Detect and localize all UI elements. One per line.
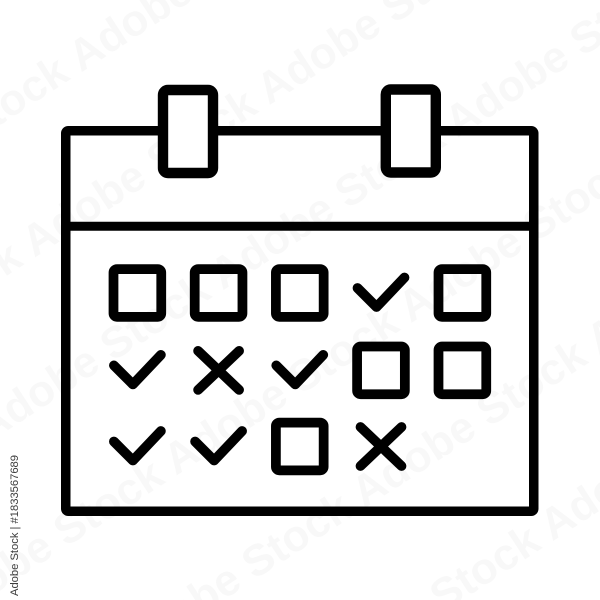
svg-text:Adobe Stock | #1833567689: Adobe Stock | #1833567689 (9, 455, 21, 596)
